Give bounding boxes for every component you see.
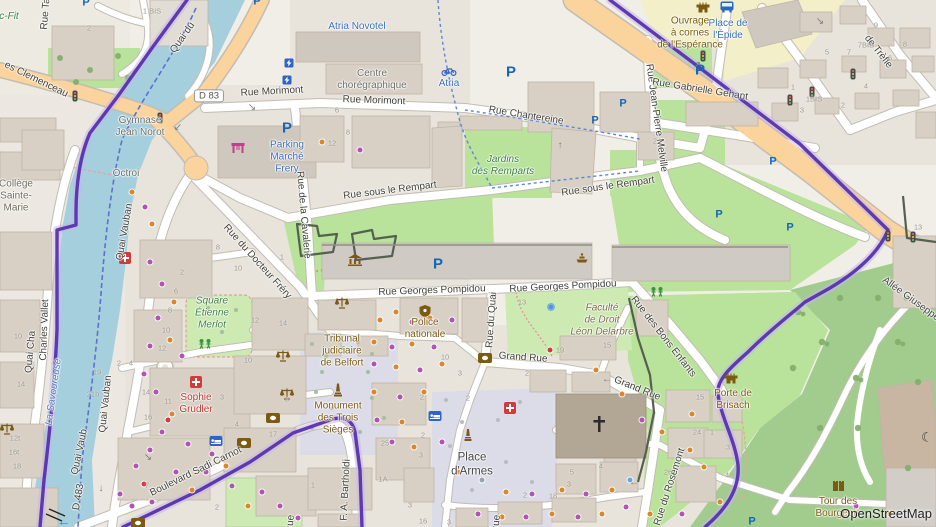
osm-map-canvas[interactable]: PPPPPPPPPPPP☾↘↙↗←←↓↘↘↑← Quai duRue Taes … xyxy=(0,0,936,527)
osm-attribution-link[interactable]: OpenStreetMap xyxy=(840,506,932,521)
map-base-tiles xyxy=(0,0,936,527)
